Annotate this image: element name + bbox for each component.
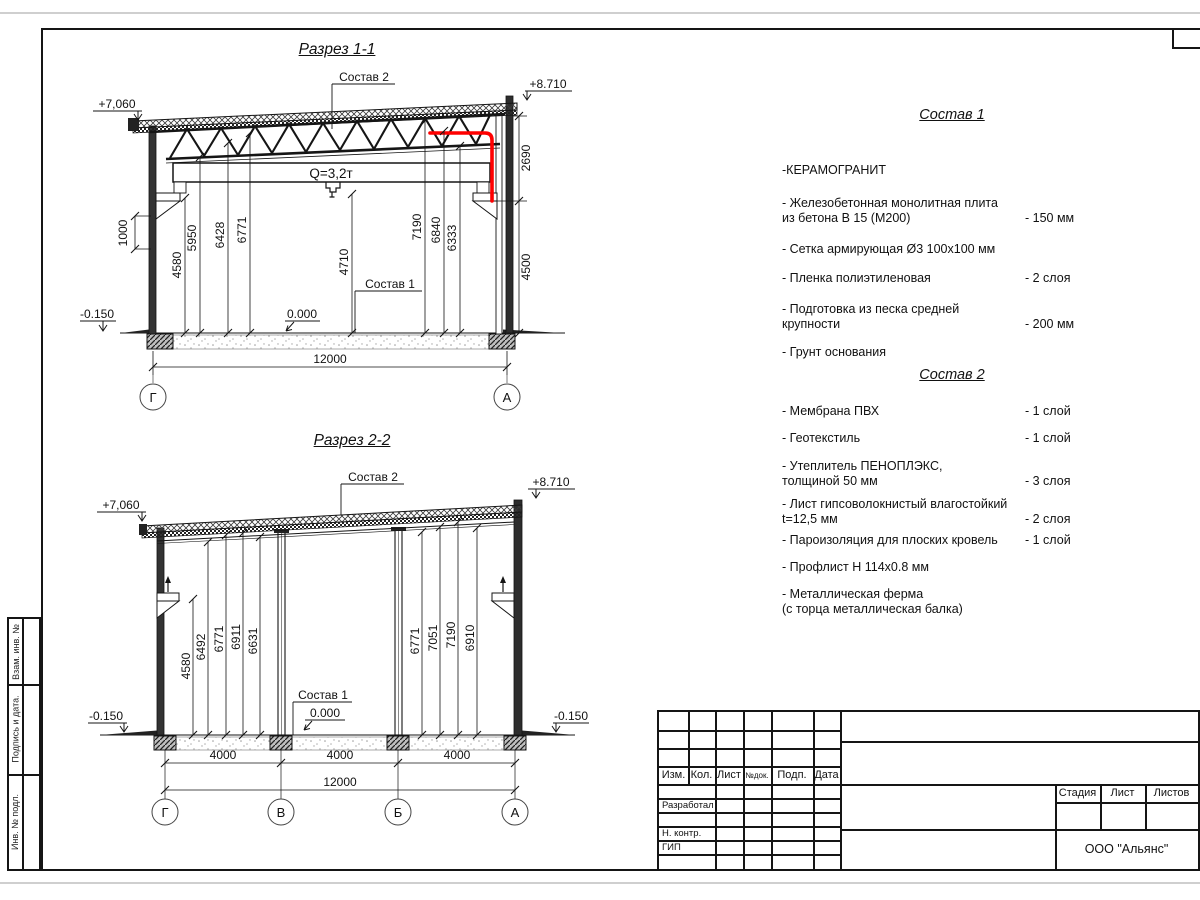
dim: 4580 bbox=[170, 251, 184, 278]
dim: 6492 bbox=[194, 633, 208, 660]
sostav2-leader-label: Состав 2 bbox=[339, 70, 389, 84]
tb-header: Лист bbox=[715, 766, 743, 784]
list-item: - Железобетонная монолитная плита из бет… bbox=[782, 196, 1122, 226]
company-name: ООО "Альянс" bbox=[1055, 829, 1198, 869]
list-item: - Геотекстиль- 1 слой bbox=[782, 431, 1122, 446]
bay-dim: 4000 bbox=[210, 748, 237, 762]
dim: 6771 bbox=[408, 627, 422, 654]
dim: 6333 bbox=[445, 224, 459, 251]
tb-line bbox=[813, 712, 815, 869]
dim: 4710 bbox=[337, 248, 351, 275]
dim: 5950 bbox=[185, 224, 199, 251]
grid-letter: Г bbox=[149, 390, 156, 405]
section-1-1-title: Разрез 1-1 bbox=[284, 41, 390, 59]
tb-role: Разработал bbox=[662, 800, 714, 811]
item-value: - 3 слоя bbox=[1025, 474, 1122, 489]
tb-sheet: Лист bbox=[1100, 784, 1145, 802]
item-text: - Мембрана ПВХ bbox=[782, 404, 1025, 419]
item-text: - Металлическая ферма (с торца металличе… bbox=[782, 587, 1025, 617]
sostav2-title: Состав 2 bbox=[782, 367, 1122, 383]
grid-letter: А bbox=[511, 805, 520, 820]
list-item: - Пленка полиэтиленовая- 2 слоя bbox=[782, 271, 1122, 286]
tb-line bbox=[659, 854, 840, 856]
drawing-sheet: Взам. инв. № Подпись и дата. Инв. № подл… bbox=[0, 0, 1200, 900]
dim-parapet: 2690 bbox=[519, 144, 533, 171]
title-block: Изм. Кол. Лист №док. Подп. Дата Разработ… bbox=[657, 710, 1200, 871]
dim: 6631 bbox=[246, 627, 260, 654]
list-item: - Подготовка из песка средней крупности-… bbox=[782, 302, 1122, 332]
crane-capacity-label: Q=3,2т bbox=[309, 166, 352, 181]
sostav1-leader-label: Состав 1 bbox=[298, 688, 348, 702]
item-text: - Утеплитель ПЕНОПЛЭКС, толщиной 50 мм bbox=[782, 459, 1025, 489]
dim: 7051 bbox=[426, 624, 440, 651]
elevation-left: +7,060 bbox=[102, 498, 139, 512]
item-text: -КЕРАМОГРАНИТ bbox=[782, 163, 1025, 178]
tb-line bbox=[1055, 802, 1198, 804]
list-item: - Пароизоляция для плоских кровель- 1 сл… bbox=[782, 533, 1122, 548]
elevation-ground-left: -0.150 bbox=[89, 709, 123, 723]
tb-line bbox=[771, 712, 773, 869]
item-value: - 2 слоя bbox=[1025, 512, 1122, 527]
tb-header: №док. bbox=[743, 766, 771, 784]
list-item: - Сетка армирующая Ø3 100х100 мм bbox=[782, 242, 1122, 257]
item-text: - Сетка армирующая Ø3 100х100 мм bbox=[782, 242, 1025, 257]
item-value: - 1 слой bbox=[1025, 404, 1122, 419]
elevation-left: +7,060 bbox=[98, 97, 135, 111]
sostav1-leader-label: Состав 1 bbox=[365, 277, 415, 291]
dim: 7190 bbox=[444, 621, 458, 648]
dim: 6428 bbox=[213, 221, 227, 248]
grid-letter: В bbox=[277, 805, 286, 820]
item-value: - 1 слой bbox=[1025, 431, 1122, 446]
section-2-2-title: Разрез 2-2 bbox=[299, 432, 405, 450]
grid-letter: А bbox=[503, 390, 512, 405]
tb-stage: Стадия bbox=[1055, 784, 1100, 802]
dim-span: 12000 bbox=[313, 352, 347, 366]
elevation-zero: 0.000 bbox=[310, 706, 340, 720]
dim: 6910 bbox=[463, 624, 477, 651]
grid-letter: Б bbox=[394, 805, 403, 820]
tb-sheets: Листов bbox=[1145, 784, 1198, 802]
list-item: - Мембрана ПВХ- 1 слой bbox=[782, 404, 1122, 419]
dim-1000: 1000 bbox=[116, 219, 130, 246]
dim: 7190 bbox=[410, 213, 424, 240]
item-value: - 150 мм bbox=[1025, 211, 1122, 226]
item-value: - 1 слой bbox=[1025, 533, 1122, 548]
dim: 6840 bbox=[429, 216, 443, 243]
tb-header: Изм. bbox=[659, 766, 688, 784]
tb-line bbox=[840, 741, 1198, 743]
dim-span: 12000 bbox=[323, 775, 357, 789]
bay-dim: 4000 bbox=[444, 748, 471, 762]
item-text: - Подготовка из песка средней крупности bbox=[782, 302, 1025, 332]
tb-line bbox=[715, 712, 717, 869]
elevation-ground: -0.150 bbox=[80, 307, 114, 321]
tb-header: Дата bbox=[813, 766, 840, 784]
item-text: - Пленка полиэтиленовая bbox=[782, 271, 1025, 286]
tb-line bbox=[659, 812, 840, 814]
elevation-zero: 0.000 bbox=[287, 307, 317, 321]
tb-role: Н. контр. bbox=[662, 828, 701, 839]
list-item: - Грунт основания bbox=[782, 345, 1122, 360]
list-item: - Профлист Н 114х0.8 мм bbox=[782, 560, 1122, 575]
list-item: - Утеплитель ПЕНОПЛЭКС, толщиной 50 мм- … bbox=[782, 459, 1122, 489]
item-text: - Геотекстиль bbox=[782, 431, 1025, 446]
bay-dim: 4000 bbox=[327, 748, 354, 762]
tb-header: Подп. bbox=[771, 766, 813, 784]
tb-header: Кол. bbox=[688, 766, 715, 784]
item-text: - Профлист Н 114х0.8 мм bbox=[782, 560, 1025, 575]
sostav1-title: Состав 1 bbox=[782, 107, 1122, 123]
elevation-right: +8.710 bbox=[532, 475, 569, 489]
item-text: - Лист гипсоволокнистый влагостойкий t=1… bbox=[782, 497, 1025, 527]
dim: 6771 bbox=[235, 216, 249, 243]
tb-line bbox=[743, 712, 745, 869]
item-text: - Грунт основания bbox=[782, 345, 1025, 360]
grid-letter: Г bbox=[161, 805, 168, 820]
dim: 4580 bbox=[179, 652, 193, 679]
sostav2-leader-label: Состав 2 bbox=[348, 470, 398, 484]
elevation-right: +8.710 bbox=[529, 77, 566, 91]
dim-right: 4500 bbox=[519, 253, 533, 280]
tb-line bbox=[659, 730, 840, 732]
elevation-ground-right: -0.150 bbox=[554, 709, 588, 723]
dim: 6911 bbox=[229, 624, 243, 650]
list-item: - Металлическая ферма (с торца металличе… bbox=[782, 587, 1122, 617]
tb-line bbox=[659, 840, 840, 842]
tb-line bbox=[659, 748, 840, 750]
item-value: - 200 мм bbox=[1025, 317, 1122, 332]
tb-line bbox=[840, 712, 842, 869]
item-text: - Пароизоляция для плоских кровель bbox=[782, 533, 1025, 548]
dim: 6771 bbox=[212, 625, 226, 652]
tb-role: ГИП bbox=[662, 842, 681, 853]
list-item: - Лист гипсоволокнистый влагостойкий t=1… bbox=[782, 497, 1122, 527]
section-2-2 bbox=[88, 484, 589, 825]
list-item: -КЕРАМОГРАНИТ bbox=[782, 163, 1122, 178]
item-value: - 2 слоя bbox=[1025, 271, 1122, 286]
item-text: - Железобетонная монолитная плита из бет… bbox=[782, 196, 1025, 226]
